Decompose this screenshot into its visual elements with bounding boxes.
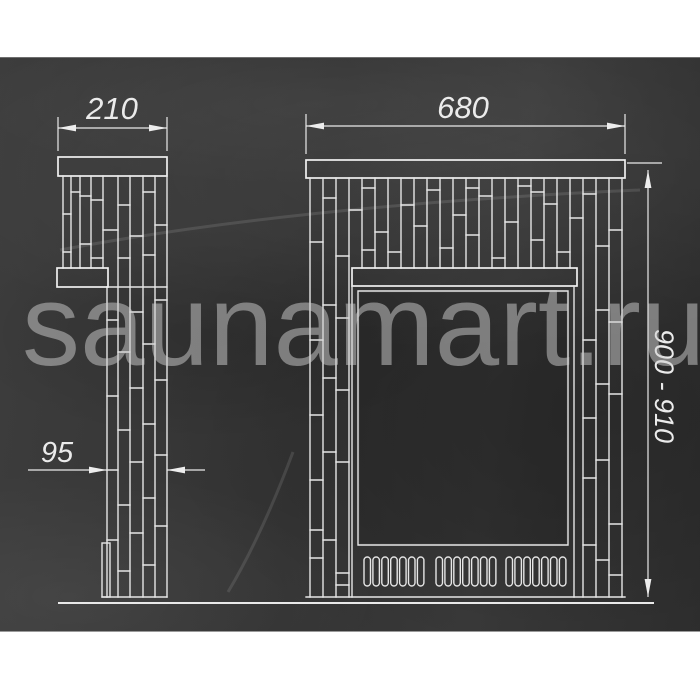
arrow-right-icon <box>149 125 167 132</box>
arrow-down-icon <box>645 579 652 597</box>
background-streak <box>60 190 640 250</box>
vent-grille-right <box>506 557 566 586</box>
arrow-up-icon <box>645 170 652 188</box>
dimension-front-width: 680 <box>306 90 625 154</box>
background-scratch <box>228 452 293 592</box>
arrow-left-icon <box>306 123 324 130</box>
front-top-cap <box>306 160 625 178</box>
vent-grille-center <box>436 557 496 586</box>
dimension-side-depth: 95 <box>28 437 205 473</box>
arrow-left-icon <box>167 467 185 474</box>
dimension-side-depth-label: 95 <box>41 437 74 469</box>
side-top-cap <box>58 157 167 176</box>
arrow-left-icon <box>58 125 76 132</box>
arrow-right-icon <box>89 467 107 474</box>
watermark: saunamart.ru <box>22 267 700 383</box>
dimension-side-width-label: 210 <box>85 91 138 126</box>
dimension-side-width: 210 <box>58 91 167 151</box>
dimension-front-width-label: 680 <box>437 90 489 125</box>
vent-grille-left <box>364 557 424 586</box>
side-base-foot <box>102 543 110 597</box>
vent-grilles <box>364 557 566 586</box>
arrow-right-icon <box>607 123 625 130</box>
